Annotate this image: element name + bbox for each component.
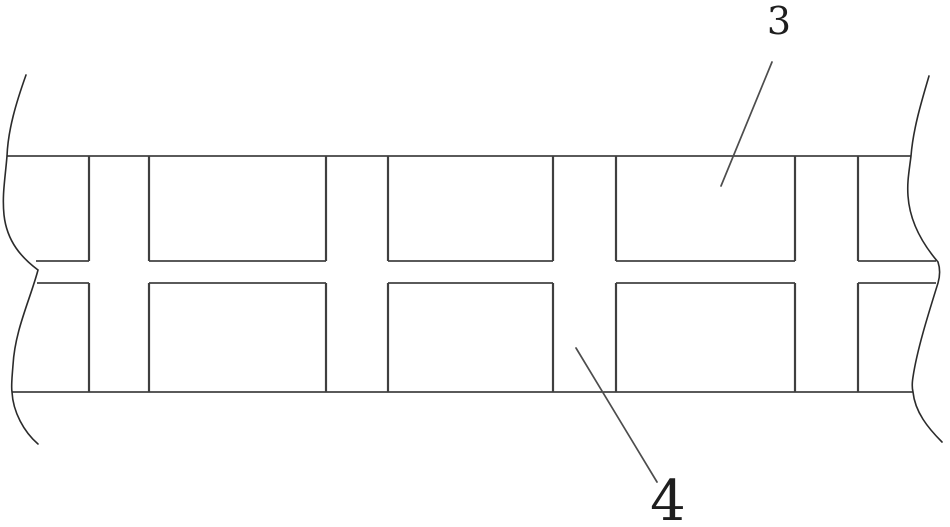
reference-numeral-3: 3 <box>767 2 791 40</box>
structure-horizontal-lines <box>7 156 936 392</box>
structure-vertical-lines <box>89 156 858 392</box>
drawing-svg <box>0 0 950 527</box>
leader-lines <box>576 62 772 482</box>
reference-numeral-4: 4 <box>650 474 686 527</box>
break-lines <box>3 75 942 444</box>
patent-figure-canvas: 3 4 <box>0 0 950 527</box>
